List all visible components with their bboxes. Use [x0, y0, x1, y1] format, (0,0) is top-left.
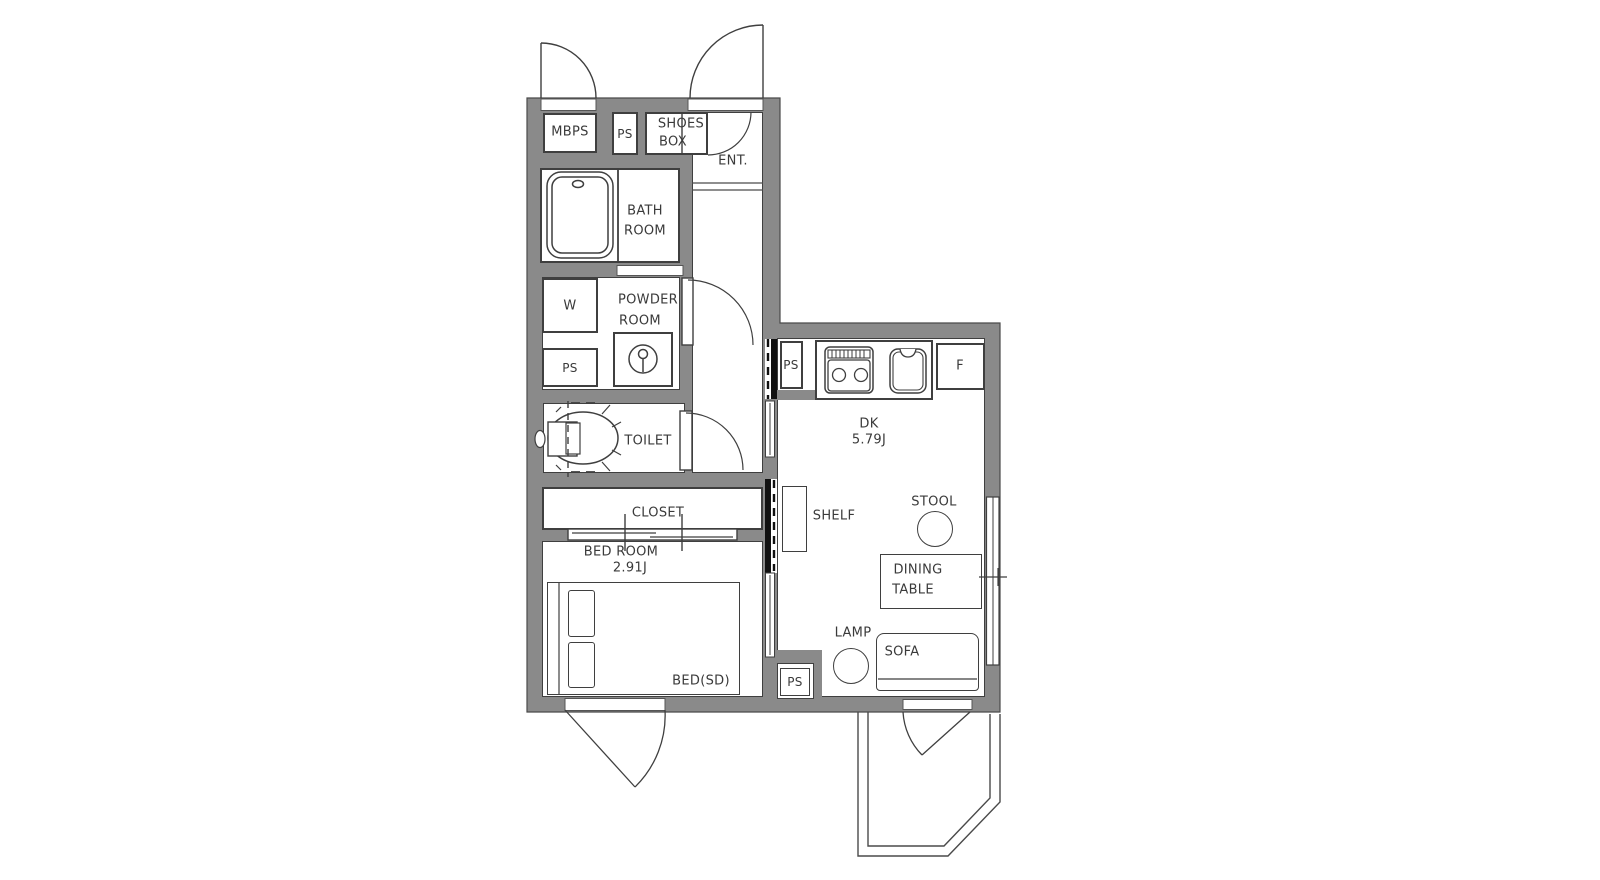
- balcony-door-threshold: [903, 700, 972, 710]
- balcony-outline: [858, 712, 1000, 856]
- bedroom-size-label: 2.91J: [613, 561, 647, 576]
- dining-table-label-2: TABLE: [892, 583, 934, 598]
- bathroom-label-1: BATH: [627, 204, 663, 219]
- shelf-label: SHELF: [813, 509, 855, 524]
- stool-label: STOOL: [911, 495, 956, 510]
- entrance-threshold: [688, 99, 763, 111]
- dining-table-label-1: DINING: [893, 563, 942, 578]
- dk-right-window: [979, 497, 1007, 665]
- dk-name-label: DK: [859, 417, 878, 432]
- dk-size-label: 5.79J: [852, 433, 886, 448]
- shoes-box-label-2: BOX: [659, 135, 687, 150]
- powder-sink: [629, 345, 657, 373]
- mbps-label: MBPS: [551, 125, 588, 140]
- entry-step: [692, 183, 763, 190]
- balcony-door: [903, 712, 970, 755]
- dk-partition-details: [765, 339, 777, 657]
- toilet-fixture: [535, 401, 621, 477]
- plan-linework: [0, 0, 1600, 880]
- floorplan-canvas: MBPS PS SHOES BOX ENT. BATH ROOM W POWDE…: [0, 0, 1600, 880]
- entrance-label: ENT.: [718, 154, 748, 169]
- ps-powder-label: PS: [562, 361, 577, 375]
- bedroom-name-label: BED ROOM: [584, 545, 658, 560]
- entrance-door: [690, 25, 763, 98]
- powder-room-label-2: ROOM: [619, 314, 661, 329]
- mb-door-threshold: [541, 99, 596, 111]
- bedroom-door-threshold: [565, 699, 665, 711]
- ps-top-label: PS: [617, 127, 632, 141]
- bathtub: [547, 172, 613, 258]
- shoes-box-label-1: SHOES: [658, 117, 704, 132]
- ps-bottom-label: PS: [787, 675, 802, 689]
- washer-label: W: [563, 299, 576, 314]
- sofa-label: SOFA: [885, 645, 920, 660]
- toilet-label: TOILET: [624, 434, 671, 449]
- stove: [825, 347, 873, 393]
- kitchen-sink: [890, 349, 926, 393]
- bedroom-exterior-door: [565, 710, 665, 787]
- fridge-label: F: [956, 359, 964, 374]
- bed-label: BED(SD): [672, 674, 730, 689]
- toilet-door: [680, 411, 743, 470]
- mb-door: [541, 43, 596, 98]
- bathroom-label-2: ROOM: [624, 224, 666, 239]
- lamp-label: LAMP: [835, 626, 872, 641]
- closet-label: CLOSET: [632, 506, 684, 521]
- powder-room-label-1: POWDER: [618, 293, 678, 308]
- powder-room-door: [682, 278, 753, 345]
- ps-dk-label: PS: [783, 358, 798, 372]
- shoes-box-door-arc: [708, 112, 751, 155]
- bath-door-opening: [617, 266, 683, 276]
